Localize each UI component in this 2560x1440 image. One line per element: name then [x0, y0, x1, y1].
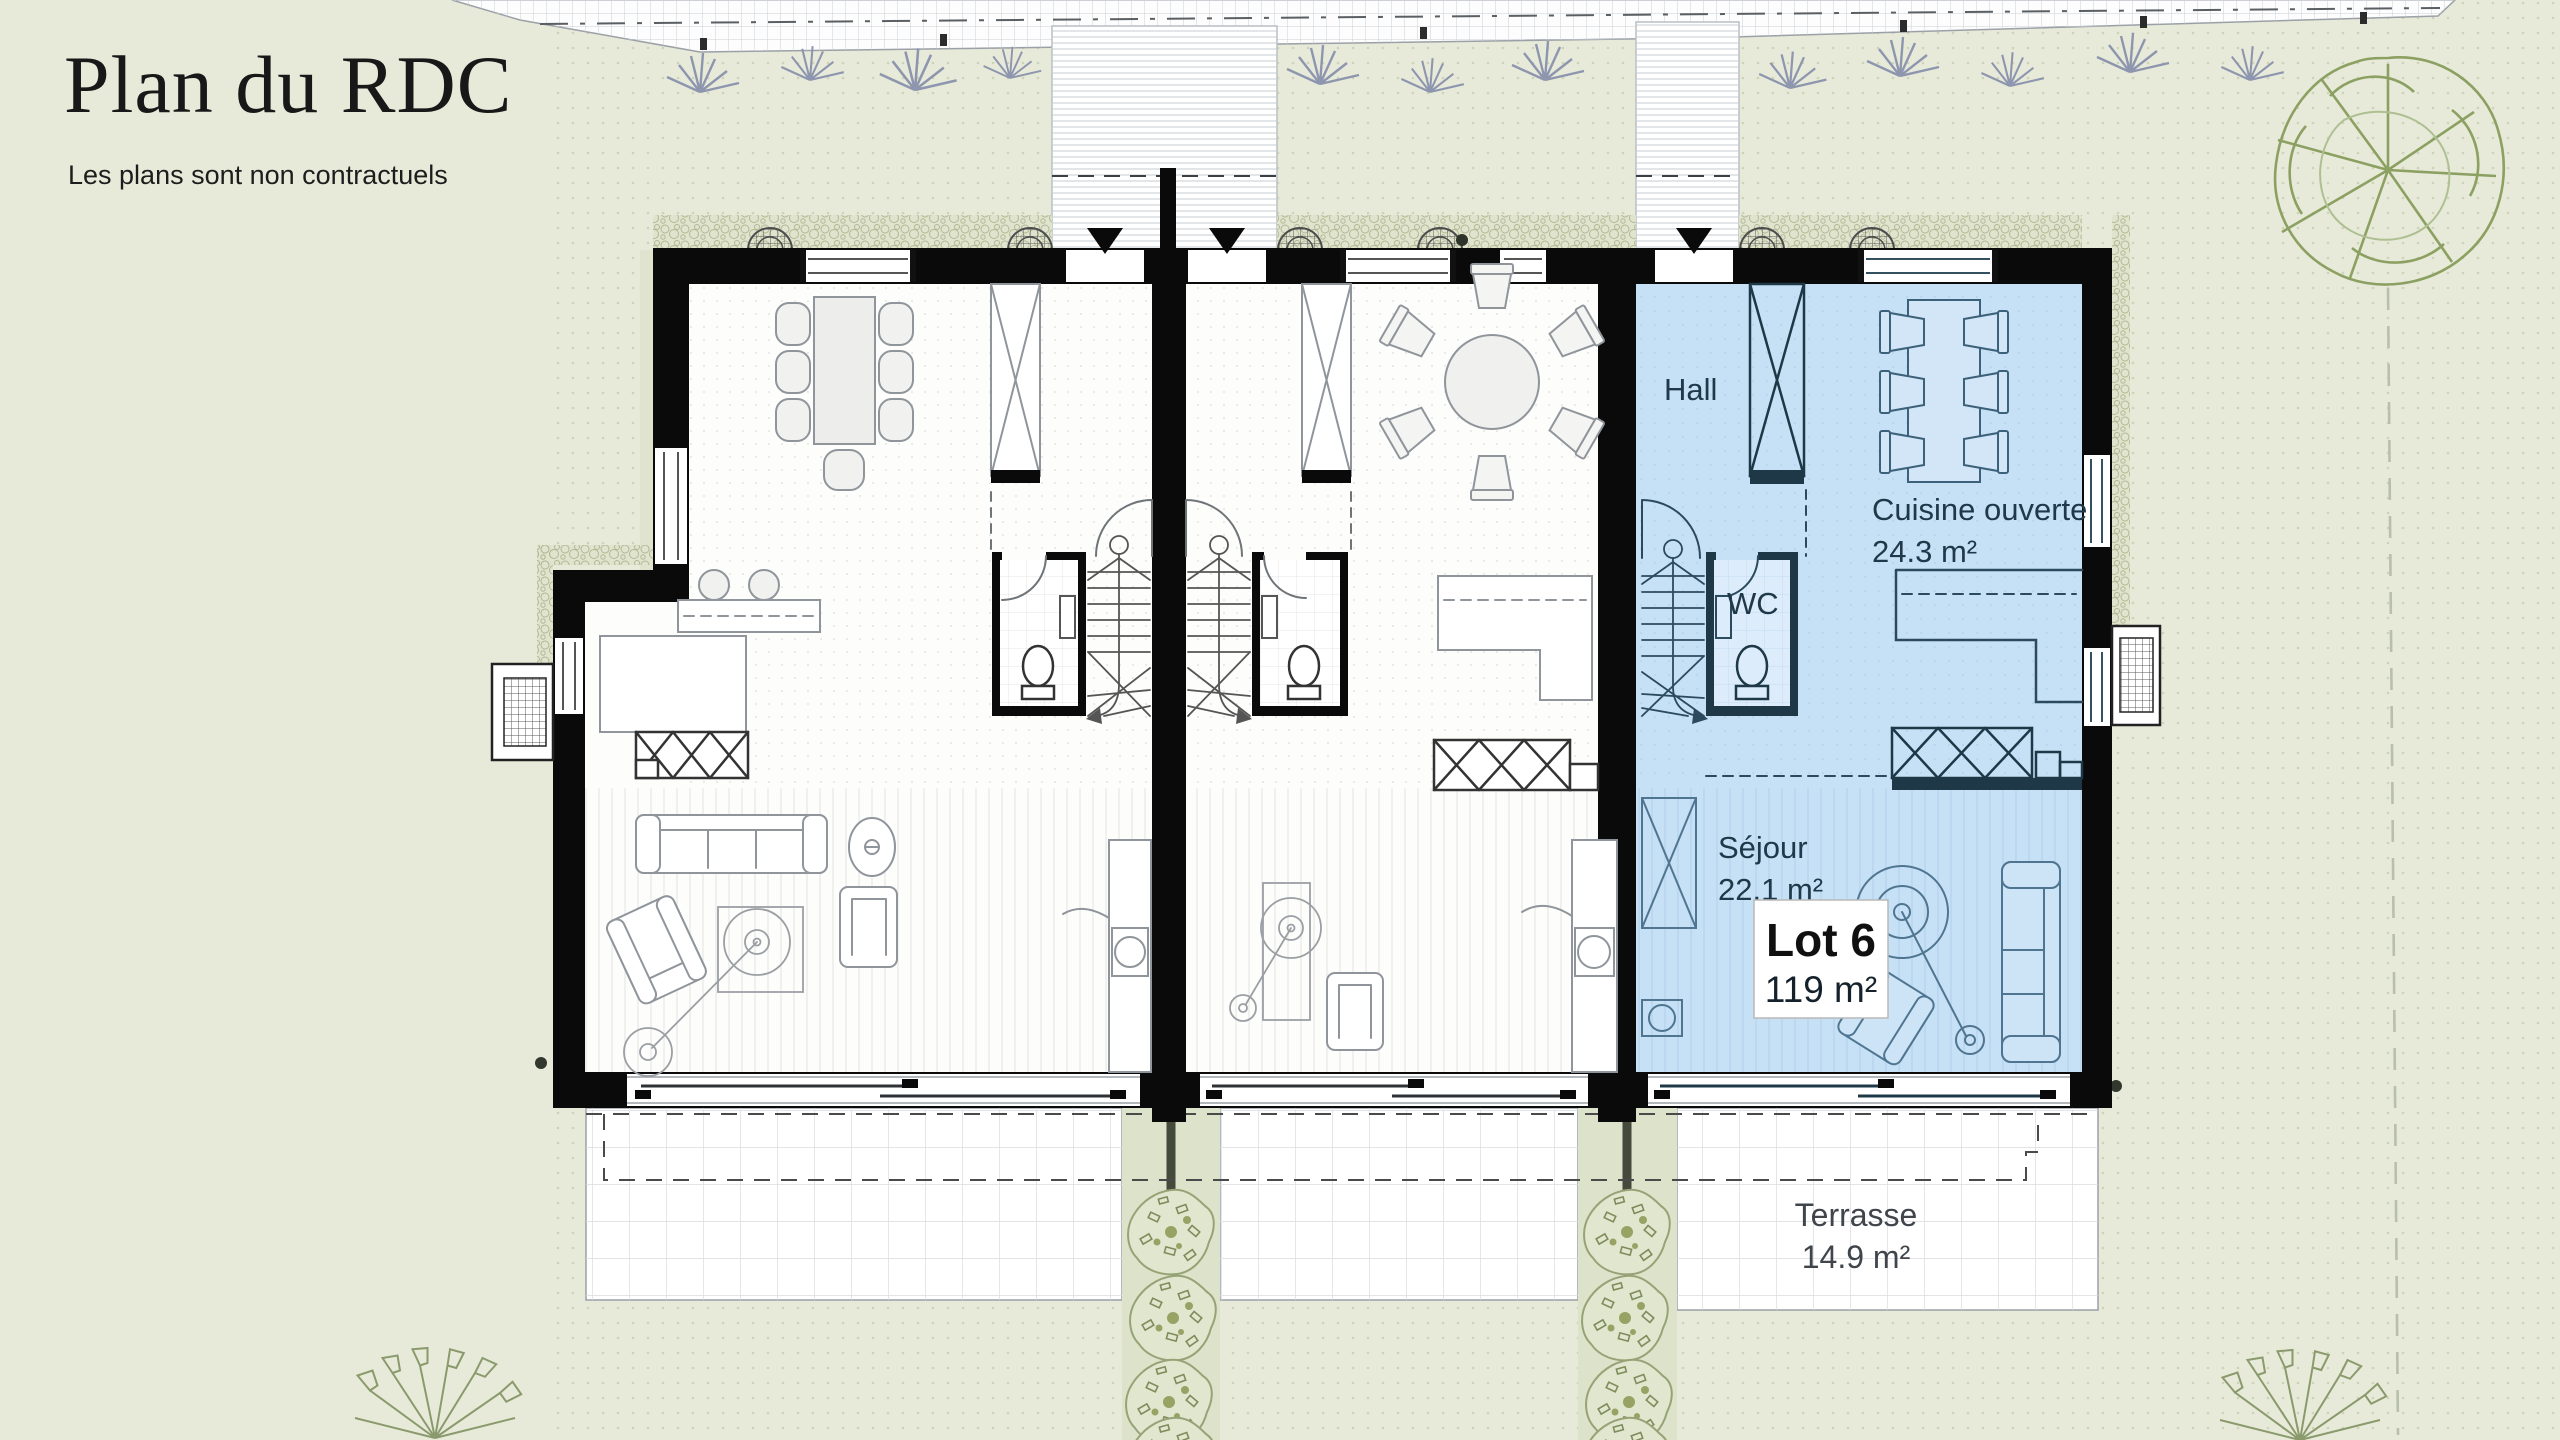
lot-name: Lot 6 — [1766, 914, 1876, 966]
terrace-label: Terrasse — [1795, 1197, 1918, 1233]
floor-plan-page: Hall Cuisine ouverte 24.3 m² WC Séjour 2… — [0, 0, 2560, 1440]
building — [492, 228, 2160, 1122]
window-well-icon — [2120, 638, 2153, 712]
wc-label: WC — [1727, 586, 1779, 621]
window-well-icon — [504, 678, 546, 746]
page-title: Plan du RDC — [64, 38, 512, 132]
lot-area: 119 m² — [1765, 969, 1877, 1010]
living-label: Séjour — [1718, 830, 1808, 865]
lot-badge[interactable]: Lot 6 119 m² — [1754, 900, 1888, 1018]
kitchen-label: Cuisine ouverte — [1872, 492, 2087, 527]
south-glazing — [627, 1074, 2070, 1106]
floor-plan-canvas: Hall Cuisine ouverte 24.3 m² WC Séjour 2… — [0, 0, 2560, 1440]
page-subtitle: Les plans sont non contractuels — [68, 160, 448, 191]
terrace-area: 14.9 m² — [1802, 1239, 1911, 1275]
kitchen-area: 24.3 m² — [1872, 534, 1977, 569]
hall-label: Hall — [1664, 372, 1717, 407]
